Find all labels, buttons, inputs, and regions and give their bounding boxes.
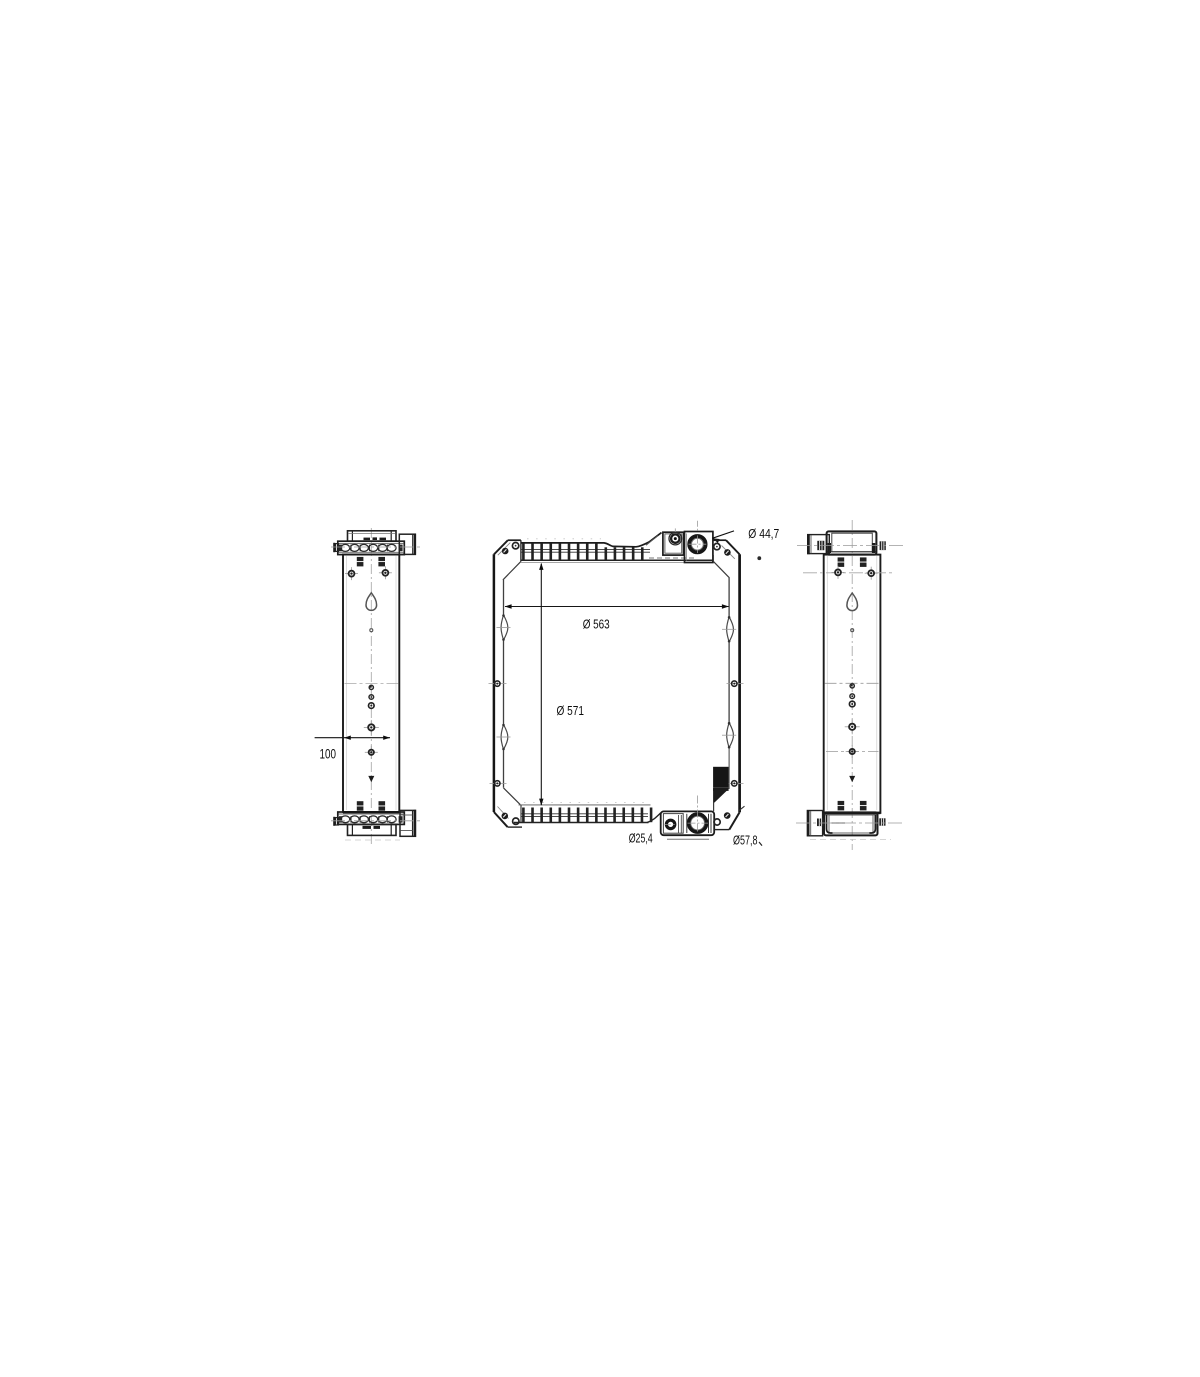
svg-text:Ø25,4: Ø25,4	[629, 831, 653, 845]
svg-text:Ø 563: Ø 563	[583, 616, 610, 631]
svg-text:Ø57,8: Ø57,8	[733, 834, 758, 848]
svg-text:Ø 44,7: Ø 44,7	[748, 526, 779, 541]
svg-text:Ø 571: Ø 571	[557, 703, 585, 718]
svg-text:100: 100	[320, 747, 337, 762]
